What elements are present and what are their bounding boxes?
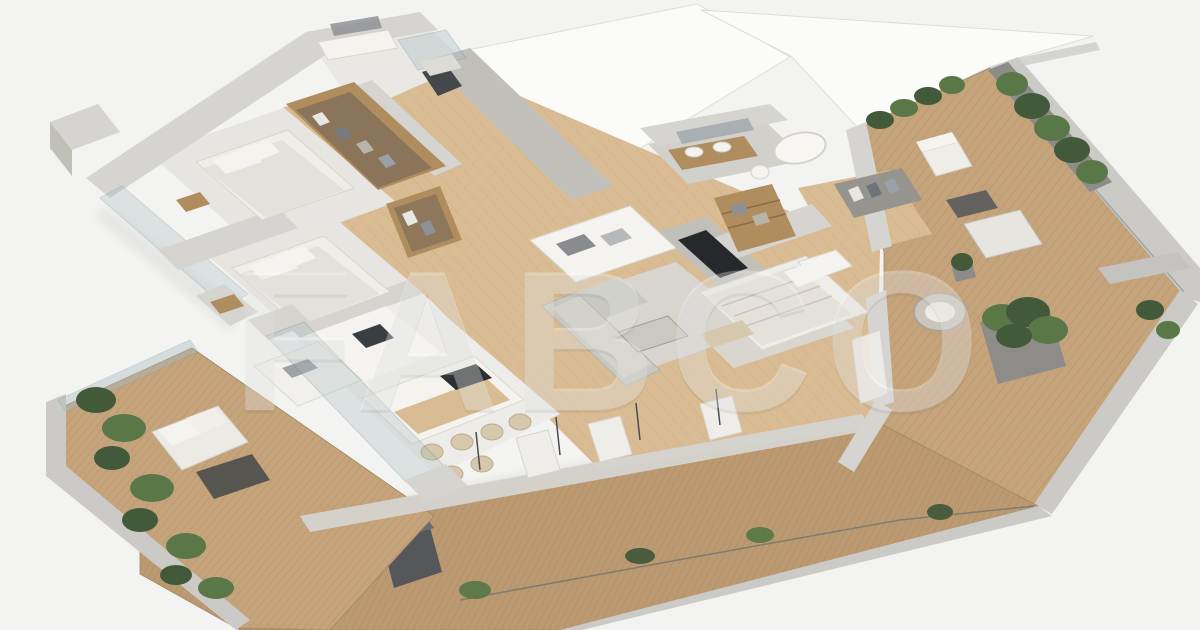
watermark-text: FABCO bbox=[232, 230, 992, 453]
left-plant bbox=[94, 446, 130, 470]
left-plant bbox=[76, 387, 116, 413]
left-plant bbox=[130, 474, 174, 502]
left-plant bbox=[102, 414, 146, 442]
hedge-plant bbox=[1034, 115, 1070, 141]
hedge-plant bbox=[939, 76, 965, 94]
railing-bush bbox=[746, 527, 774, 543]
left-plant bbox=[198, 577, 234, 599]
hedge-plant bbox=[1076, 160, 1108, 184]
railing-bush bbox=[927, 504, 953, 520]
hedge-plant bbox=[914, 87, 942, 105]
railing-bush bbox=[625, 548, 655, 564]
floorplan-stage: FABCO FABCO bbox=[0, 0, 1200, 630]
toilet bbox=[751, 165, 769, 179]
left-plant bbox=[166, 533, 206, 559]
hedge-plant bbox=[1014, 93, 1050, 119]
left-plant bbox=[122, 508, 158, 532]
hedge-plant bbox=[866, 111, 894, 129]
bar-stool bbox=[471, 456, 493, 472]
corner-bush bbox=[1156, 321, 1180, 339]
corner-bush bbox=[1136, 300, 1164, 320]
left-plant bbox=[160, 565, 192, 585]
railing-bush bbox=[459, 581, 491, 599]
planter-bush bbox=[996, 324, 1032, 348]
watermark-layer: FABCO FABCO bbox=[232, 230, 992, 456]
hedge-plant bbox=[1054, 137, 1090, 163]
hedge-plant bbox=[890, 99, 918, 117]
planter-bush bbox=[1028, 316, 1068, 344]
floorplan-render: FABCO FABCO bbox=[0, 0, 1200, 630]
sink-basin bbox=[713, 142, 731, 152]
hedge-plant bbox=[996, 72, 1028, 96]
sink-basin bbox=[685, 147, 703, 157]
